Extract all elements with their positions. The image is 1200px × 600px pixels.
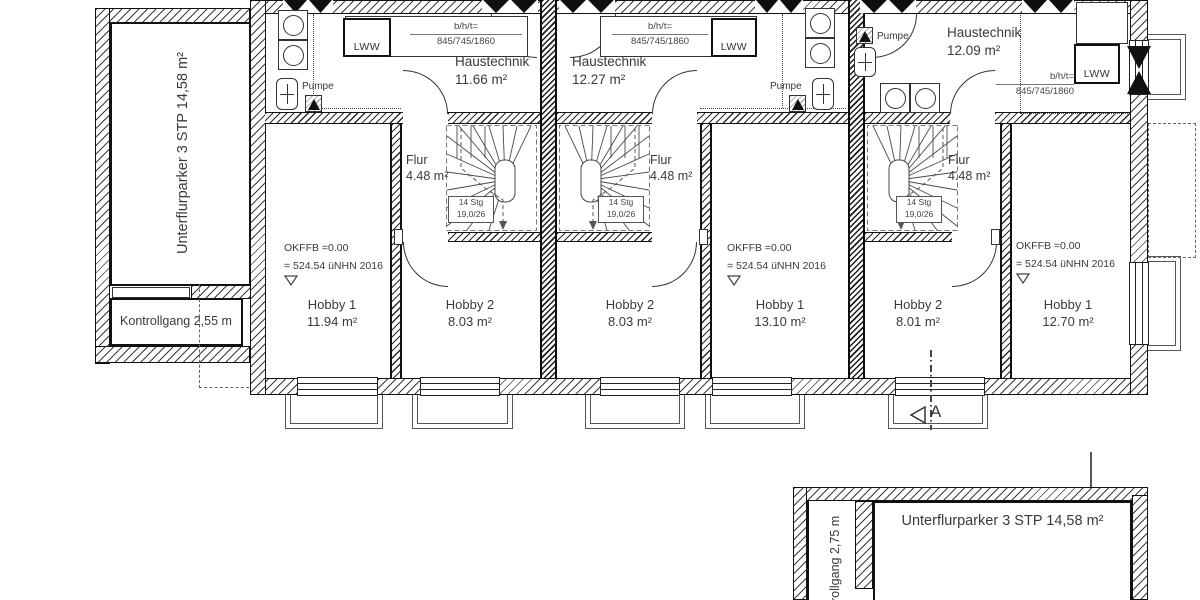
wall	[793, 487, 807, 600]
level-marker-icon	[1016, 273, 1030, 284]
party-wall	[540, 0, 557, 378]
left-wall	[250, 0, 266, 395]
dotted-line	[782, 14, 783, 108]
door-wedge-icon	[860, 0, 916, 13]
wall	[95, 8, 250, 23]
wall	[1132, 495, 1148, 600]
level-marker: OKFFB =0.00= 524.54 üNHN 2016	[284, 240, 383, 276]
cabinet-dimensions: b/h/t=845/745/1860	[410, 20, 522, 49]
pump-label: Pumpe	[770, 80, 802, 93]
left-corridor-label: Kontrollgang 2,55 m	[112, 313, 240, 329]
dashed-line	[199, 387, 249, 388]
hobby-label: Hobby 28.03 m²	[590, 297, 670, 331]
cabinet-dimensions: b/h/t=845/745/1860	[996, 70, 1074, 99]
door-arc	[652, 242, 697, 287]
door-wedge-icon	[559, 0, 615, 13]
stairs-label: 14 Stg19,0/26	[598, 196, 644, 223]
level-marker-icon	[727, 275, 741, 286]
hobby-label: Hobby 28.03 m²	[430, 297, 510, 331]
hobby-label: Hobby 112.70 m²	[1028, 297, 1108, 331]
window	[297, 377, 378, 396]
dashed-boundary	[1148, 123, 1196, 258]
door-wedge-icon	[482, 0, 538, 13]
sink	[854, 47, 876, 77]
wall	[390, 124, 402, 378]
haustechnik-label: Haustechnik11.66 m²	[455, 53, 529, 88]
door-leaf	[699, 229, 708, 245]
wall	[95, 8, 110, 364]
haustechnik-label: Haustechnik12.27 m²	[572, 53, 646, 88]
dotted-line	[1020, 113, 1130, 114]
stairs-label: 14 Stg19,0/26	[448, 196, 494, 223]
dotted-line	[313, 108, 401, 109]
section-arrow-icon	[908, 404, 928, 426]
wall	[557, 112, 652, 124]
haustechnik-label: Haustechnik12.09 m²	[947, 24, 1021, 59]
heat-pump-cabinet	[1076, 2, 1128, 44]
door-leaf	[394, 229, 403, 245]
lww-unit: LWW	[343, 18, 391, 57]
wall	[265, 112, 403, 124]
washing-machine	[805, 38, 835, 68]
hobby-label: Hobby 28.01 m²	[878, 297, 958, 331]
sink	[276, 78, 298, 110]
floor-plan: Unterflurparker 3 STP 14,58 m² Kontrollg…	[0, 0, 1200, 600]
wall	[557, 232, 652, 242]
door-arc	[403, 242, 448, 287]
section-marker: A	[930, 401, 941, 423]
door-wedge-icon	[1022, 0, 1074, 13]
wall-niche	[112, 287, 190, 298]
window	[420, 377, 500, 396]
light-well	[705, 395, 805, 429]
bottom-wall	[250, 378, 1148, 395]
light-well	[285, 395, 383, 429]
lww-unit: LWW	[711, 18, 757, 57]
stairs-label: 14 Stg19,0/26	[896, 196, 942, 223]
lww-unit: LWW	[1074, 44, 1120, 84]
wall	[855, 501, 873, 589]
door-arc	[403, 70, 448, 114]
wall	[793, 487, 1148, 501]
wall	[697, 112, 848, 124]
window	[712, 377, 792, 396]
top-wall	[250, 0, 1148, 14]
bottom-corridor-label: rollgang 2,75 m	[814, 502, 856, 600]
light-well	[1148, 34, 1186, 100]
wall	[448, 112, 540, 124]
door-arc	[952, 242, 997, 287]
light-well	[1148, 256, 1181, 351]
window	[895, 377, 985, 396]
bottom-garage-label: Unterflurparker 3 STP 14,58 m²	[880, 512, 1125, 531]
washing-machine	[278, 10, 308, 40]
wall	[865, 112, 950, 124]
line	[1090, 452, 1092, 487]
door-leaf	[991, 229, 1000, 245]
wall	[1000, 124, 1012, 378]
cabinet-dimensions: b/h/t=845/745/1860	[612, 20, 708, 49]
washing-machine	[278, 40, 308, 70]
flur-label: Flur4.48 m²	[948, 152, 990, 185]
hobby-label: Hobby 111.94 m²	[292, 297, 372, 331]
door-wedge-icon	[755, 0, 803, 13]
wall	[448, 232, 540, 242]
light-well	[412, 395, 513, 429]
door-arc	[950, 70, 995, 114]
hobby-label: Hobby 113.10 m²	[740, 297, 820, 331]
flur-label: Flur4.48 m²	[406, 152, 448, 185]
washing-machine	[880, 83, 910, 113]
left-garage-label: Unterflurparker 3 STP 14,58 m²	[168, 28, 198, 278]
level-marker: OKFFB =0.00= 524.54 üNHN 2016	[1016, 238, 1115, 274]
wall	[700, 124, 712, 378]
pump-symbol	[789, 95, 806, 112]
sink	[812, 78, 834, 110]
wall	[95, 346, 250, 363]
pump-label: Pumpe	[302, 80, 334, 93]
pump-label: Pumpe	[877, 30, 909, 43]
light-well	[585, 395, 685, 429]
window	[600, 377, 680, 396]
pump-symbol	[856, 27, 873, 44]
washing-machine	[910, 83, 940, 113]
pump-symbol	[305, 95, 322, 112]
dashed-line	[199, 284, 200, 388]
insulation-bowtie-icon	[1127, 46, 1151, 94]
level-marker: OKFFB =0.00= 524.54 üNHN 2016	[727, 240, 826, 276]
door-arc	[652, 70, 697, 114]
window	[1129, 262, 1149, 345]
level-marker-icon	[284, 275, 298, 286]
flur-label: Flur4.48 m²	[650, 152, 692, 185]
washing-machine	[805, 8, 835, 38]
wall	[191, 285, 251, 299]
wall	[865, 232, 952, 242]
